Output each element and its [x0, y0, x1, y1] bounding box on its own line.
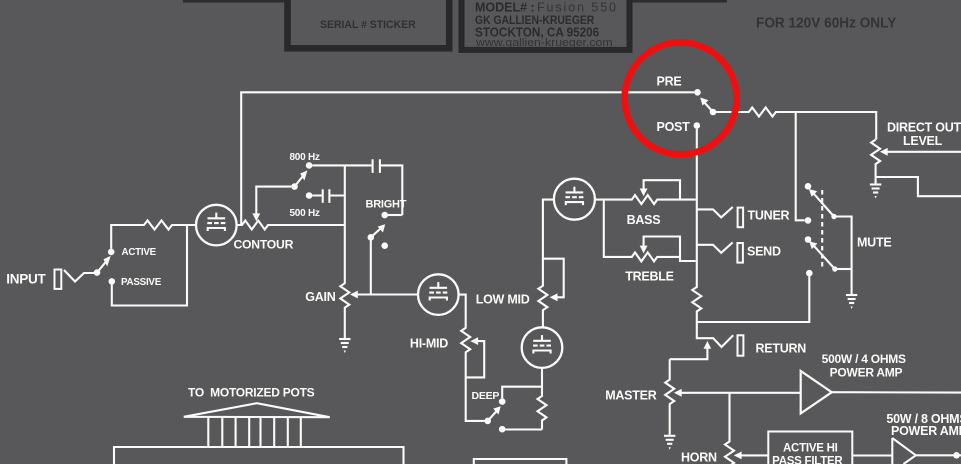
svg-text:DEEP: DEEP: [472, 390, 500, 402]
svg-text:500 Hz: 500 Hz: [290, 208, 320, 219]
svg-text:SERIAL # STICKER: SERIAL # STICKER: [320, 19, 416, 31]
svg-text:ACTIVE: ACTIVE: [122, 247, 157, 258]
svg-text:800 Hz: 800 Hz: [290, 152, 320, 163]
svg-text:500W / 4 OHMS: 500W / 4 OHMS: [822, 352, 906, 366]
svg-text:MASTER: MASTER: [605, 389, 657, 403]
svg-text:CONTOUR: CONTOUR: [234, 238, 294, 252]
svg-text:TO MOTORIZED POTS: TO MOTORIZED POTS: [188, 386, 315, 400]
svg-text:DIRECT OUT: DIRECT OUT: [887, 121, 961, 135]
svg-text:RETURN: RETURN: [756, 342, 807, 356]
svg-text:PASS FILTER: PASS FILTER: [772, 456, 843, 464]
svg-text:ACTIVE HI: ACTIVE HI: [783, 443, 838, 455]
svg-text:BASS: BASS: [627, 213, 661, 227]
svg-text:POWER AMP: POWER AMP: [891, 424, 961, 438]
svg-text:POST: POST: [657, 120, 691, 134]
svg-text:HI-MID: HI-MID: [410, 337, 448, 351]
svg-text:LEVEL: LEVEL: [903, 134, 943, 148]
svg-text:PRE: PRE: [657, 75, 682, 89]
svg-text:GAIN: GAIN: [305, 290, 335, 304]
svg-text:MUTE: MUTE: [857, 235, 891, 249]
svg-text:www.gallien-krueger.com: www.gallien-krueger.com: [475, 37, 613, 49]
svg-text:PASSIVE: PASSIVE: [121, 277, 162, 288]
svg-text:LOW MID: LOW MID: [476, 293, 530, 307]
svg-text:TREBLE: TREBLE: [625, 270, 674, 284]
svg-text:TUNER: TUNER: [748, 209, 790, 223]
svg-text:INPUT: INPUT: [6, 272, 46, 287]
svg-text:SEND: SEND: [747, 244, 781, 258]
svg-text:BRIGHT: BRIGHT: [366, 199, 407, 211]
svg-text:POWER AMP: POWER AMP: [830, 366, 903, 380]
svg-text:FOR 120V 60Hz ONLY: FOR 120V 60Hz ONLY: [756, 16, 897, 32]
svg-text:HORN: HORN: [681, 451, 717, 464]
